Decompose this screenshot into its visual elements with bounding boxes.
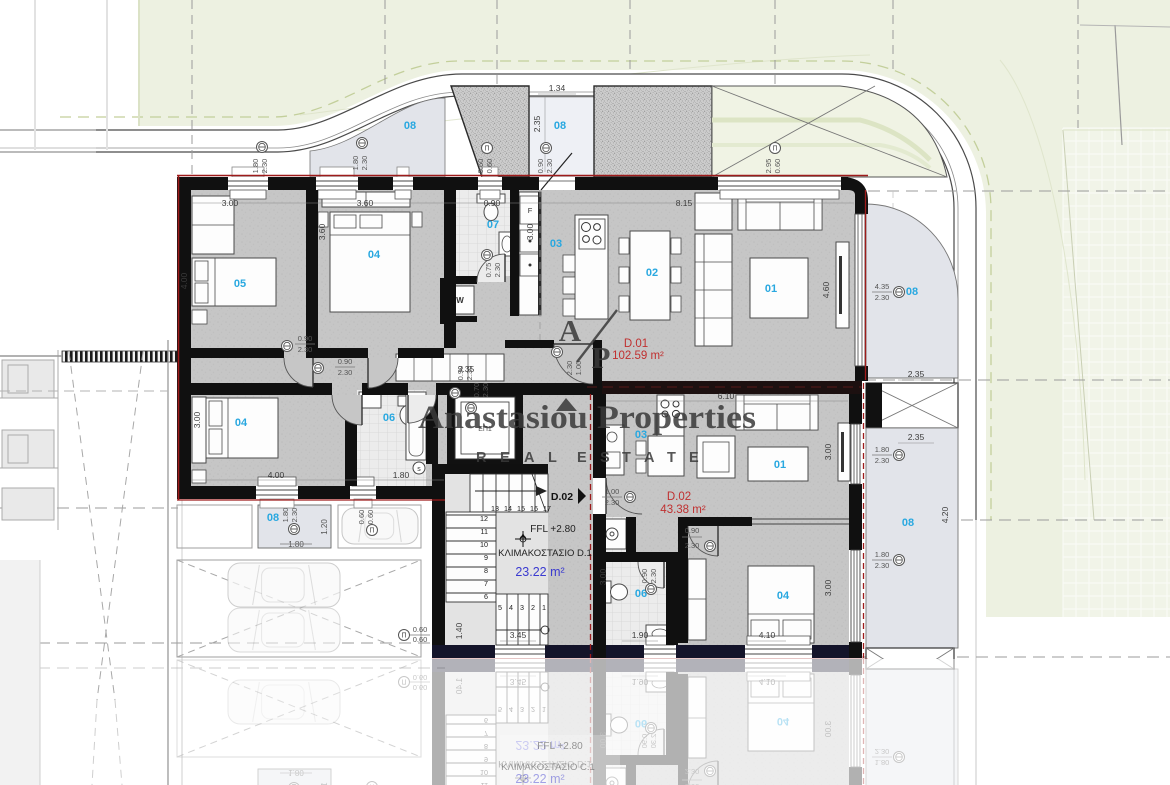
- svg-text:2.30: 2.30: [565, 361, 574, 376]
- svg-text:4: 4: [509, 603, 513, 612]
- svg-text:2.30: 2.30: [338, 368, 353, 377]
- svg-text:2.30: 2.30: [545, 159, 554, 174]
- svg-text:08: 08: [267, 512, 279, 524]
- svg-text:2.30: 2.30: [481, 383, 490, 398]
- svg-text:04: 04: [235, 417, 248, 429]
- svg-text:15: 15: [517, 504, 525, 513]
- svg-text:ΚΛΙΜΑΚΟΣΤΑΣΙΟ D.1: ΚΛΙΜΑΚΟΣΤΑΣΙΟ D.1: [498, 548, 592, 559]
- svg-text:05: 05: [234, 278, 246, 290]
- svg-text:1.80: 1.80: [288, 540, 304, 549]
- svg-text:2.30: 2.30: [360, 156, 369, 171]
- svg-text:1.80: 1.80: [251, 159, 260, 174]
- svg-text:D.02: D.02: [551, 491, 573, 503]
- svg-text:4.20: 4.20: [940, 506, 950, 523]
- svg-text:0.90: 0.90: [536, 159, 545, 174]
- svg-text:6: 6: [484, 592, 488, 601]
- svg-text:08: 08: [404, 120, 416, 132]
- svg-text:03: 03: [550, 238, 562, 250]
- svg-text:2.30: 2.30: [290, 508, 299, 523]
- svg-text:23.22 m²: 23.22 m²: [515, 565, 564, 579]
- svg-text:0.60: 0.60: [357, 510, 366, 525]
- svg-text:7: 7: [484, 579, 488, 588]
- svg-text:3.00: 3.00: [598, 568, 608, 585]
- svg-text:FFL +2.80: FFL +2.80: [530, 524, 576, 535]
- svg-text:3.00: 3.00: [192, 411, 202, 428]
- svg-text:02: 02: [646, 267, 658, 279]
- svg-text:0.75: 0.75: [484, 263, 493, 278]
- svg-text:Π: Π: [484, 146, 489, 153]
- svg-text:D.02: D.02: [667, 491, 691, 503]
- svg-text:10: 10: [480, 540, 488, 549]
- svg-text:E: E: [689, 450, 699, 466]
- svg-text:06: 06: [383, 412, 395, 424]
- svg-text:0.90: 0.90: [685, 526, 700, 535]
- svg-text:8.15: 8.15: [676, 198, 693, 208]
- svg-text:14: 14: [504, 504, 512, 513]
- svg-text:9: 9: [484, 553, 488, 562]
- svg-text:2.30: 2.30: [649, 569, 658, 584]
- svg-text:S: S: [600, 450, 610, 466]
- svg-text:102.59 m²: 102.59 m²: [612, 350, 664, 362]
- svg-text:2: 2: [531, 603, 535, 612]
- svg-text:12: 12: [480, 514, 488, 523]
- svg-text:04: 04: [368, 249, 381, 261]
- svg-text:2.30: 2.30: [685, 541, 700, 550]
- svg-text:2.30: 2.30: [465, 366, 474, 381]
- svg-text:13: 13: [491, 504, 499, 513]
- svg-text:1.80: 1.80: [875, 550, 890, 559]
- svg-text:1.00: 1.00: [605, 487, 620, 496]
- svg-text:T: T: [622, 450, 631, 466]
- svg-text:3.00: 3.00: [222, 198, 239, 208]
- svg-text:04: 04: [777, 590, 790, 602]
- svg-text:3: 3: [520, 603, 524, 612]
- svg-text:Π: Π: [369, 528, 374, 535]
- svg-text:0.90: 0.90: [484, 198, 501, 208]
- svg-text:4.00: 4.00: [179, 272, 189, 289]
- svg-text:0.70: 0.70: [472, 383, 481, 398]
- svg-text:08: 08: [554, 120, 566, 132]
- svg-text:A: A: [524, 450, 535, 466]
- svg-text:3.60: 3.60: [357, 198, 374, 208]
- svg-text:1.90: 1.90: [632, 630, 649, 640]
- svg-text:3.00: 3.00: [823, 443, 833, 460]
- svg-text:1.00: 1.00: [574, 361, 583, 376]
- svg-text:1.80: 1.80: [281, 508, 290, 523]
- svg-text:1: 1: [542, 603, 546, 612]
- svg-text:08: 08: [902, 517, 914, 529]
- svg-text:07: 07: [487, 219, 499, 231]
- svg-text:Π: Π: [401, 633, 406, 640]
- svg-text:0.60: 0.60: [413, 635, 428, 644]
- svg-text:FFL +2.80: FFL +2.80: [537, 741, 583, 752]
- svg-text:0.60: 0.60: [485, 159, 494, 174]
- svg-text:4.00: 4.00: [268, 470, 285, 480]
- svg-text:L: L: [548, 450, 557, 466]
- svg-text:0.60: 0.60: [476, 159, 485, 174]
- svg-text:01: 01: [774, 459, 786, 471]
- svg-text:2.95: 2.95: [764, 159, 773, 174]
- svg-text:23.22 m²: 23.22 m²: [515, 772, 564, 785]
- svg-text:8: 8: [484, 566, 488, 575]
- svg-text:1.34: 1.34: [549, 83, 566, 93]
- svg-text:2.35: 2.35: [532, 115, 542, 132]
- svg-text:2.30: 2.30: [875, 561, 890, 570]
- svg-text:3.00: 3.00: [525, 223, 535, 240]
- svg-text:1.80: 1.80: [351, 156, 360, 171]
- svg-text:2.35: 2.35: [908, 432, 925, 442]
- svg-text:D.01: D.01: [624, 338, 648, 350]
- svg-text:17: 17: [543, 504, 551, 513]
- svg-text:3.45: 3.45: [510, 630, 527, 640]
- svg-text:11: 11: [481, 527, 488, 536]
- svg-text:0.90: 0.90: [456, 366, 465, 381]
- svg-text:E: E: [577, 450, 587, 466]
- svg-text:W: W: [456, 296, 464, 305]
- svg-text:0.90: 0.90: [338, 357, 353, 366]
- svg-text:A: A: [644, 450, 655, 466]
- svg-text:0.60: 0.60: [413, 625, 428, 634]
- svg-text:4.35: 4.35: [875, 282, 890, 291]
- svg-text:2.30: 2.30: [298, 345, 313, 354]
- svg-text:01: 01: [765, 283, 777, 295]
- svg-text:2.30: 2.30: [875, 293, 890, 302]
- svg-text:08: 08: [906, 286, 918, 298]
- svg-text:0.60: 0.60: [366, 510, 375, 525]
- svg-text:2.30: 2.30: [605, 498, 620, 507]
- svg-text:2.30: 2.30: [493, 263, 502, 278]
- svg-text:2.35: 2.35: [908, 369, 925, 379]
- svg-text:16: 16: [530, 504, 538, 513]
- svg-text:1.20: 1.20: [320, 519, 329, 535]
- svg-text:1.80: 1.80: [393, 470, 410, 480]
- svg-text:A: A: [559, 313, 582, 348]
- svg-text:4.60: 4.60: [821, 281, 831, 298]
- svg-text:3.60: 3.60: [317, 223, 327, 240]
- svg-text:2.30: 2.30: [260, 159, 269, 174]
- svg-text:1.40: 1.40: [454, 622, 464, 639]
- svg-text:E: E: [500, 450, 510, 466]
- svg-text:3.00: 3.00: [823, 579, 833, 596]
- svg-text:s: s: [417, 466, 421, 473]
- svg-text:5: 5: [498, 603, 502, 612]
- svg-text:P: P: [592, 340, 611, 375]
- svg-text:0.90: 0.90: [640, 569, 649, 584]
- svg-text:2.30: 2.30: [875, 456, 890, 465]
- svg-text:4.10: 4.10: [759, 630, 776, 640]
- svg-text:Anastasiou Properties: Anastasiou Properties: [418, 400, 756, 436]
- svg-text:R: R: [476, 450, 487, 466]
- svg-text:0.60: 0.60: [773, 159, 782, 174]
- svg-text:F: F: [528, 206, 533, 215]
- svg-text:Π: Π: [772, 146, 777, 153]
- svg-text:0.90: 0.90: [298, 334, 313, 343]
- svg-text:1.80: 1.80: [875, 445, 890, 454]
- svg-text:43.38 m²: 43.38 m²: [660, 504, 706, 516]
- svg-text:T: T: [667, 450, 676, 466]
